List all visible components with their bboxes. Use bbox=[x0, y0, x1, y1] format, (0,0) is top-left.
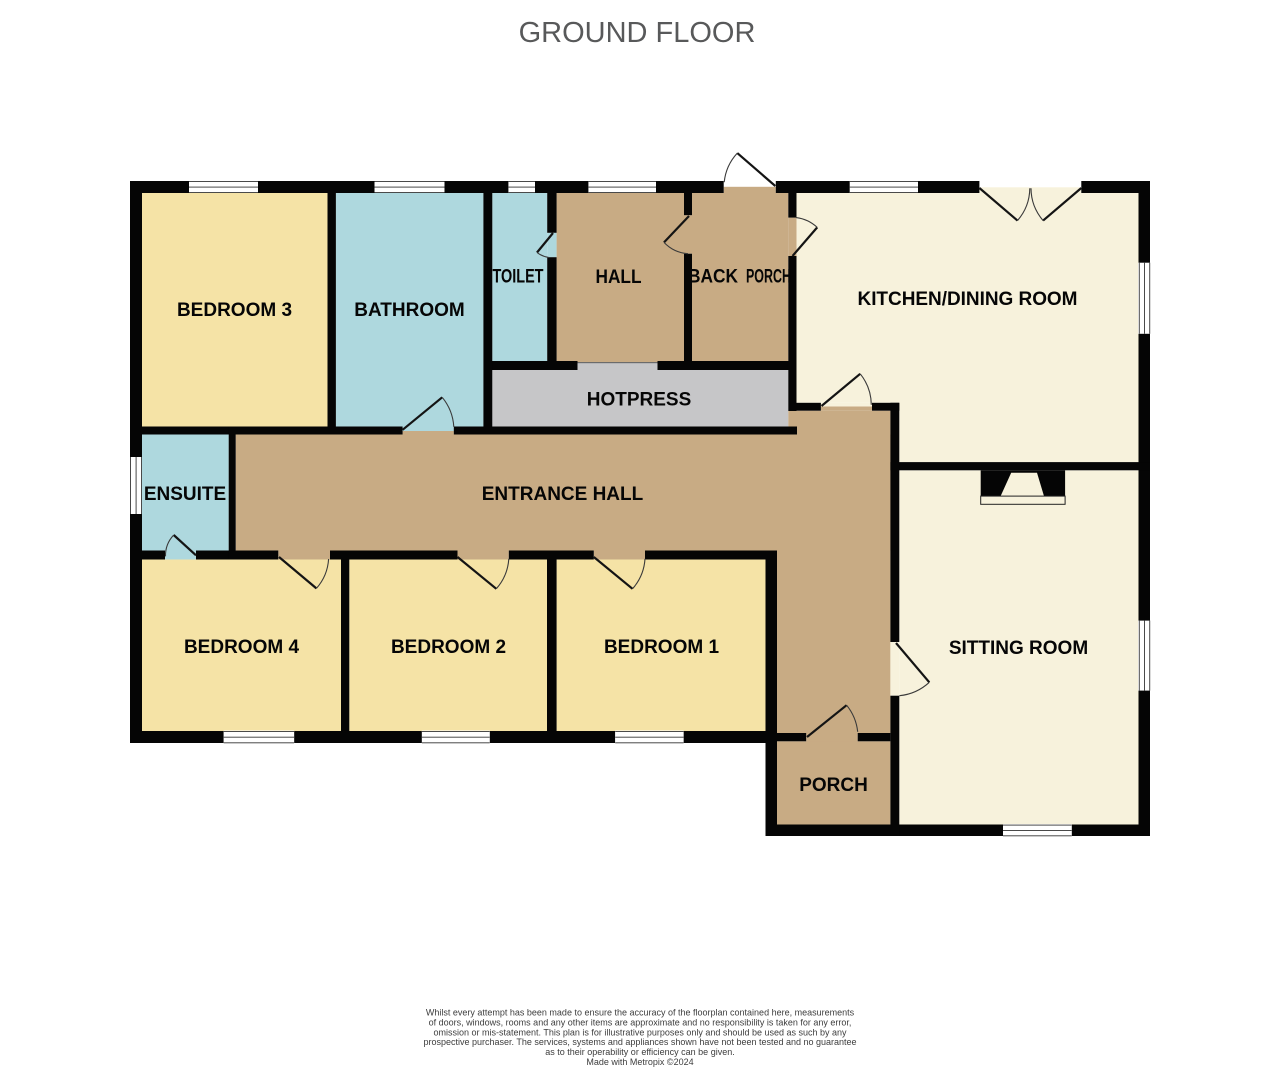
svg-text:Made with Metropix ©2024: Made with Metropix ©2024 bbox=[586, 1057, 693, 1067]
svg-text:ENSUITE: ENSUITE bbox=[144, 484, 226, 505]
svg-text:BACK: BACK bbox=[688, 267, 738, 288]
svg-text:BEDROOM 4: BEDROOM 4 bbox=[184, 637, 300, 658]
svg-text:KITCHEN/DINING ROOM: KITCHEN/DINING ROOM bbox=[858, 289, 1078, 310]
svg-text:PORCH: PORCH bbox=[799, 775, 868, 796]
svg-text:ENTRANCE HALL: ENTRANCE HALL bbox=[482, 484, 644, 505]
svg-text:of doors, windows, rooms and a: of doors, windows, rooms and any other i… bbox=[429, 1017, 852, 1027]
svg-text:omission or mis-statement. Thi: omission or mis-statement. This plan is … bbox=[433, 1027, 847, 1037]
svg-text:BEDROOM 3: BEDROOM 3 bbox=[177, 300, 292, 321]
svg-text:PORCH: PORCH bbox=[746, 267, 791, 288]
svg-text:Whilst every attempt has been: Whilst every attempt has been made to en… bbox=[426, 1008, 855, 1018]
svg-text:HOTPRESS: HOTPRESS bbox=[587, 390, 692, 411]
svg-text:TOILET: TOILET bbox=[493, 267, 544, 288]
svg-text:BATHROOM: BATHROOM bbox=[354, 300, 464, 321]
svg-text:SITTING ROOM: SITTING ROOM bbox=[949, 638, 1088, 659]
svg-text:as to their operability or eff: as to their operability or efficiency ca… bbox=[545, 1047, 734, 1057]
svg-text:prospective purchaser. The ser: prospective purchaser. The services, sys… bbox=[423, 1037, 856, 1047]
svg-text:BEDROOM 2: BEDROOM 2 bbox=[391, 637, 506, 658]
svg-text:GROUND FLOOR: GROUND FLOOR bbox=[519, 17, 756, 49]
svg-text:BEDROOM 1: BEDROOM 1 bbox=[604, 637, 720, 658]
svg-text:HALL: HALL bbox=[596, 267, 642, 288]
